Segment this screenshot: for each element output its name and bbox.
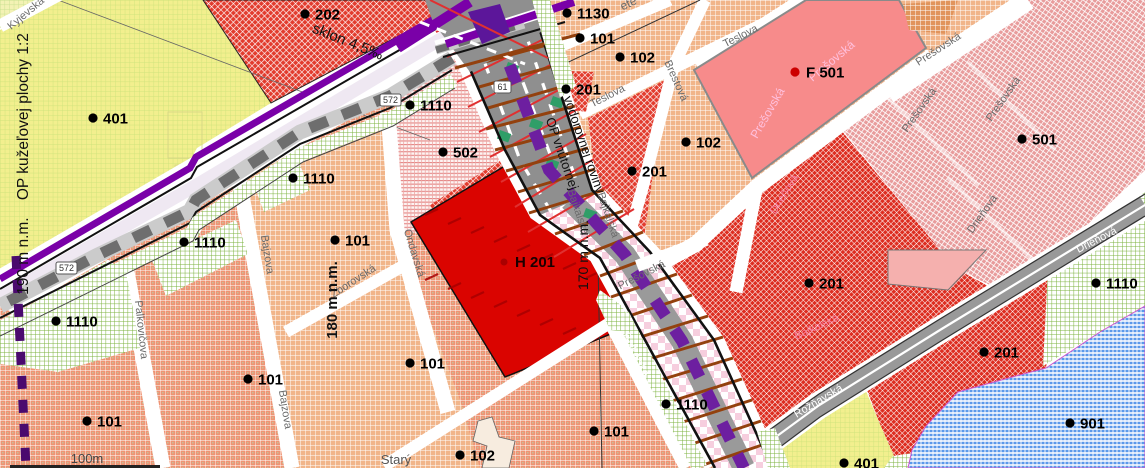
svg-text:1110: 1110 (194, 235, 226, 252)
svg-text:401: 401 (103, 111, 128, 128)
svg-text:1110: 1110 (303, 171, 335, 188)
svg-text:1110: 1110 (66, 314, 98, 331)
svg-text:201: 201 (642, 164, 667, 181)
svg-text:180 m n.m.: 180 m n.m. (324, 261, 341, 339)
svg-text:572: 572 (59, 263, 74, 273)
svg-text:401: 401 (854, 456, 879, 469)
svg-text:1110: 1110 (1106, 276, 1138, 293)
svg-text:H 201: H 201 (515, 254, 555, 271)
svg-text:Starý: Starý (381, 452, 412, 467)
svg-text:1110: 1110 (420, 98, 452, 115)
svg-text:201: 201 (576, 82, 601, 99)
svg-text:F 501: F 501 (806, 65, 844, 82)
svg-text:101: 101 (604, 424, 629, 441)
svg-text:101: 101 (258, 372, 283, 389)
svg-text:102: 102 (630, 50, 655, 67)
svg-text:572: 572 (383, 95, 398, 105)
svg-text:101: 101 (97, 414, 122, 431)
svg-text:100m: 100m (71, 451, 104, 466)
svg-text:102: 102 (470, 448, 495, 465)
svg-text:1130: 1130 (577, 6, 610, 23)
svg-text:1110: 1110 (676, 397, 708, 414)
svg-text:201: 201 (819, 276, 844, 293)
svg-text:901: 901 (1080, 416, 1105, 433)
svg-text:170 m n.m.: 170 m n.m. (575, 220, 591, 290)
svg-text:502: 502 (453, 145, 478, 162)
svg-text:101: 101 (345, 233, 370, 250)
svg-text:201: 201 (994, 345, 1019, 362)
svg-text:101: 101 (590, 31, 615, 48)
svg-text:101: 101 (420, 356, 445, 373)
svg-text:61: 61 (497, 82, 507, 92)
svg-text:501: 501 (1032, 132, 1057, 149)
svg-text:202: 202 (315, 7, 340, 24)
svg-text:102: 102 (696, 135, 721, 152)
svg-text:190 m n.m. OP kužeľovej plo: 190 m n.m. OP kužeľovej plochy 1:2 (15, 33, 32, 295)
